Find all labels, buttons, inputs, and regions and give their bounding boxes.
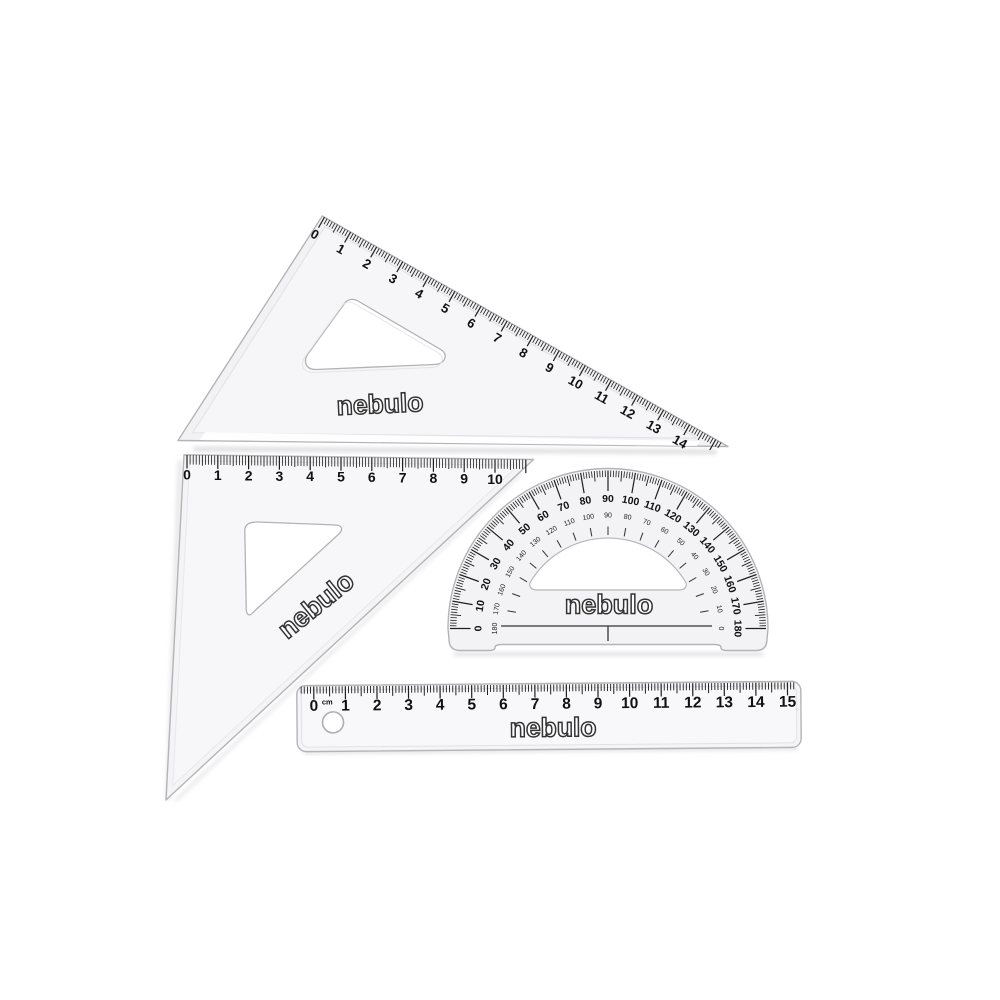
svg-text:180: 180	[732, 620, 744, 638]
svg-text:2: 2	[245, 467, 253, 483]
svg-text:cm: cm	[322, 697, 333, 706]
svg-text:3: 3	[276, 468, 284, 484]
svg-text:0: 0	[473, 625, 485, 631]
svg-text:9: 9	[460, 470, 468, 486]
svg-text:8: 8	[430, 470, 438, 486]
svg-text:90: 90	[604, 513, 612, 520]
svg-text:13: 13	[716, 694, 734, 711]
svg-text:nebulo: nebulo	[336, 387, 424, 421]
svg-text:nebulo: nebulo	[510, 712, 597, 743]
svg-text:2: 2	[373, 697, 382, 714]
svg-text:5: 5	[337, 469, 345, 485]
svg-text:10: 10	[621, 695, 638, 712]
svg-text:80: 80	[579, 494, 593, 508]
svg-text:90: 90	[602, 493, 614, 505]
svg-text:180: 180	[492, 623, 499, 635]
svg-text:0: 0	[310, 698, 319, 715]
svg-text:15: 15	[779, 694, 797, 711]
svg-text:1: 1	[214, 467, 222, 483]
svg-text:8: 8	[562, 696, 571, 713]
svg-text:6: 6	[368, 469, 376, 485]
svg-text:5: 5	[467, 696, 476, 713]
svg-text:10: 10	[715, 605, 723, 614]
svg-text:nebulo: nebulo	[565, 590, 654, 620]
svg-text:7: 7	[399, 470, 407, 486]
svg-text:14: 14	[747, 694, 765, 711]
svg-text:7: 7	[531, 696, 540, 713]
svg-text:0: 0	[183, 467, 191, 483]
svg-text:0: 0	[717, 627, 724, 631]
svg-text:4: 4	[436, 697, 445, 714]
svg-text:10: 10	[474, 599, 488, 613]
svg-text:1: 1	[341, 698, 350, 715]
svg-text:10: 10	[487, 471, 503, 487]
svg-text:4: 4	[306, 468, 314, 484]
svg-text:11: 11	[653, 695, 670, 712]
svg-text:6: 6	[499, 696, 508, 713]
svg-text:80: 80	[623, 514, 632, 522]
svg-text:9: 9	[594, 695, 603, 712]
svg-text:3: 3	[404, 697, 413, 714]
svg-text:12: 12	[684, 694, 701, 711]
